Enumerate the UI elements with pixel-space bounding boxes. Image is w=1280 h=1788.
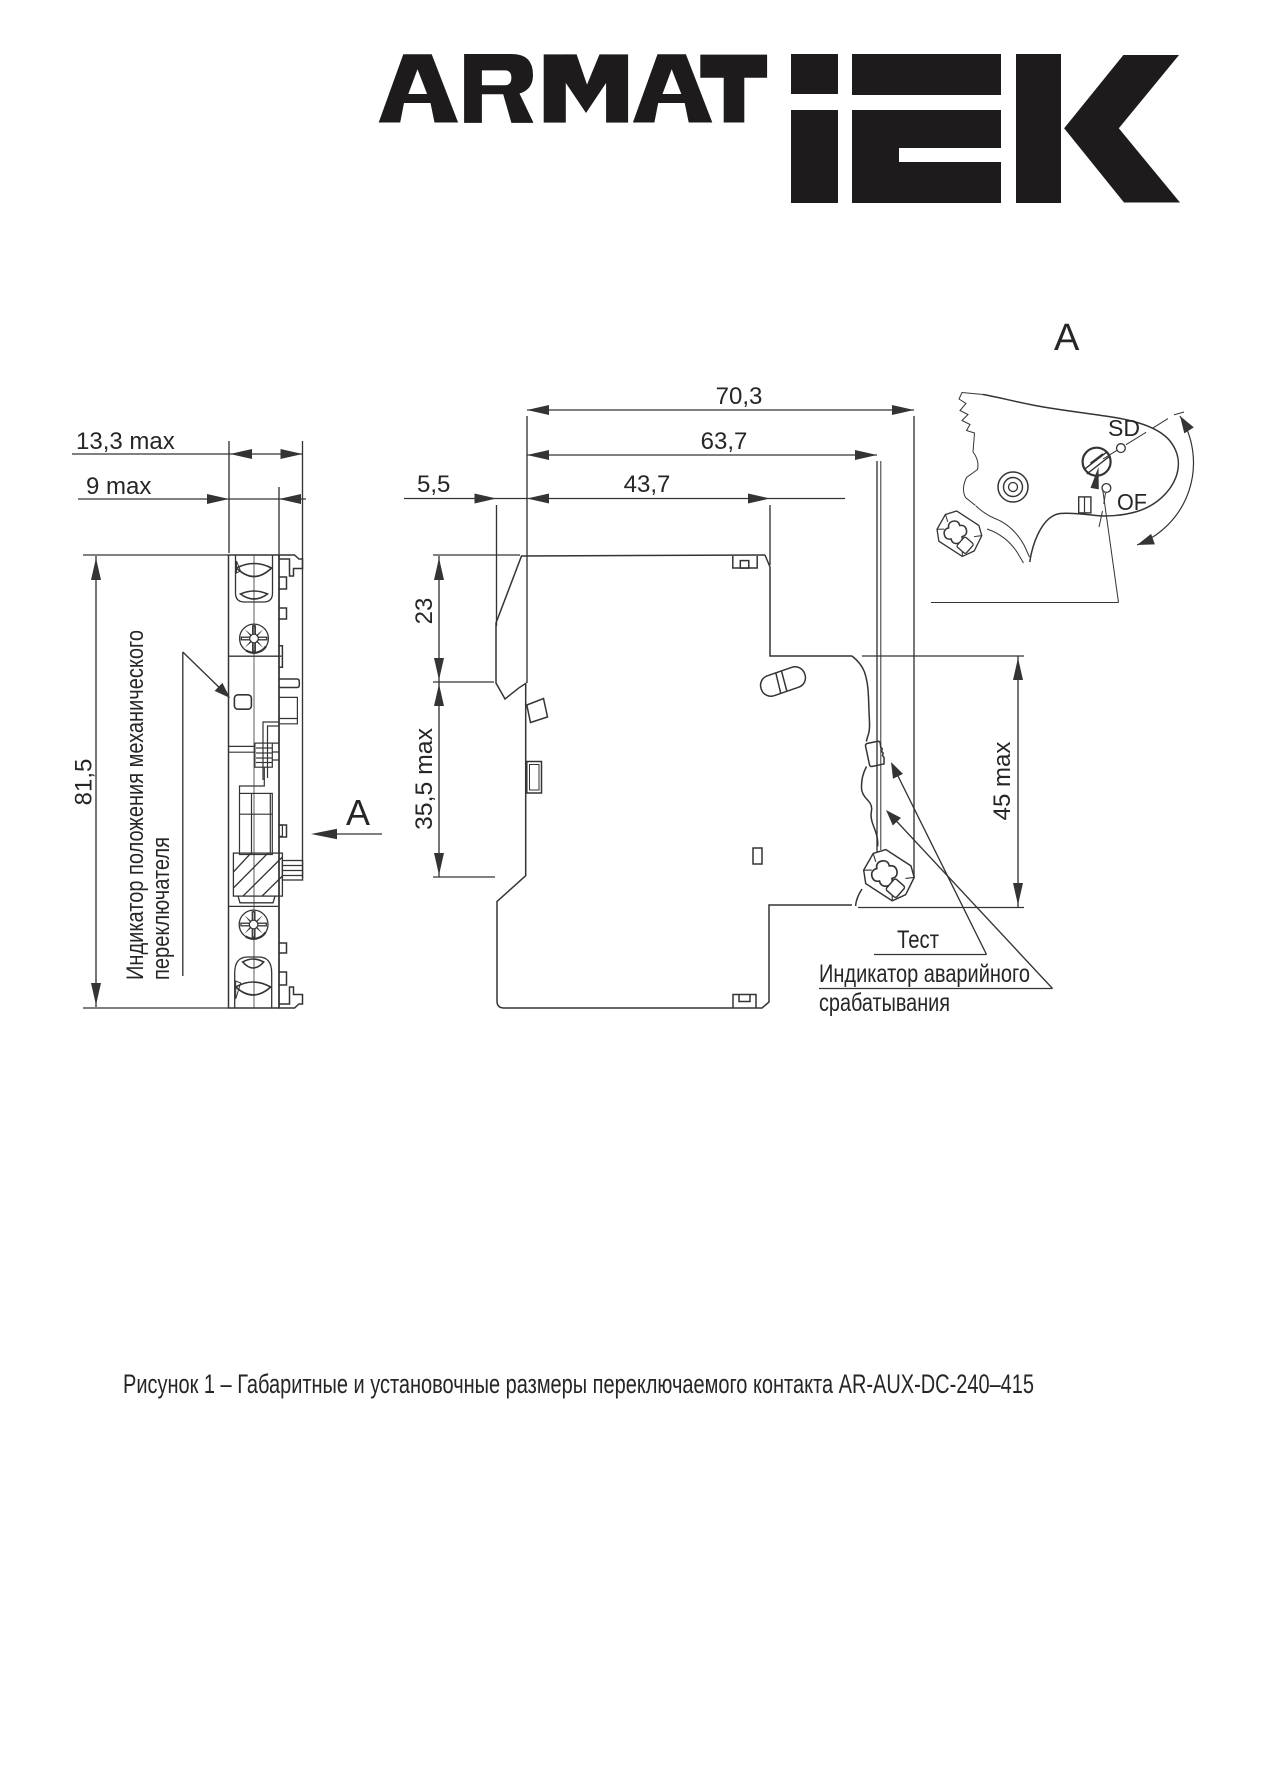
svg-text:срабатывания: срабатывания — [819, 989, 950, 1017]
svg-text:45 max: 45 max — [989, 742, 1016, 821]
svg-text:13,3 max: 13,3 max — [76, 428, 175, 455]
svg-text:A: A — [1054, 317, 1080, 359]
svg-text:Рисунок 1 – Габаритные и устан: Рисунок 1 – Габаритные и установочные ра… — [123, 1369, 1034, 1399]
svg-text:43,7: 43,7 — [624, 471, 671, 498]
svg-text:9 max: 9 max — [86, 473, 151, 500]
svg-text:SD: SD — [1108, 415, 1140, 441]
svg-text:70,3: 70,3 — [716, 383, 763, 410]
svg-text:Тест: Тест — [897, 926, 939, 954]
svg-text:Индикатор положения механическ: Индикатор положения механического — [122, 630, 149, 980]
svg-text:A: A — [346, 792, 370, 833]
svg-text:63,7: 63,7 — [701, 428, 748, 455]
svg-text:35,5 max: 35,5 max — [411, 728, 438, 830]
svg-text:81,5: 81,5 — [71, 759, 98, 806]
svg-text:OF: OF — [1117, 489, 1147, 515]
svg-text:5,5: 5,5 — [417, 471, 450, 498]
svg-text:переключателя: переключателя — [148, 837, 175, 980]
svg-text:23: 23 — [411, 598, 438, 625]
svg-text:Индикатор аварийного: Индикатор аварийного — [819, 960, 1030, 988]
